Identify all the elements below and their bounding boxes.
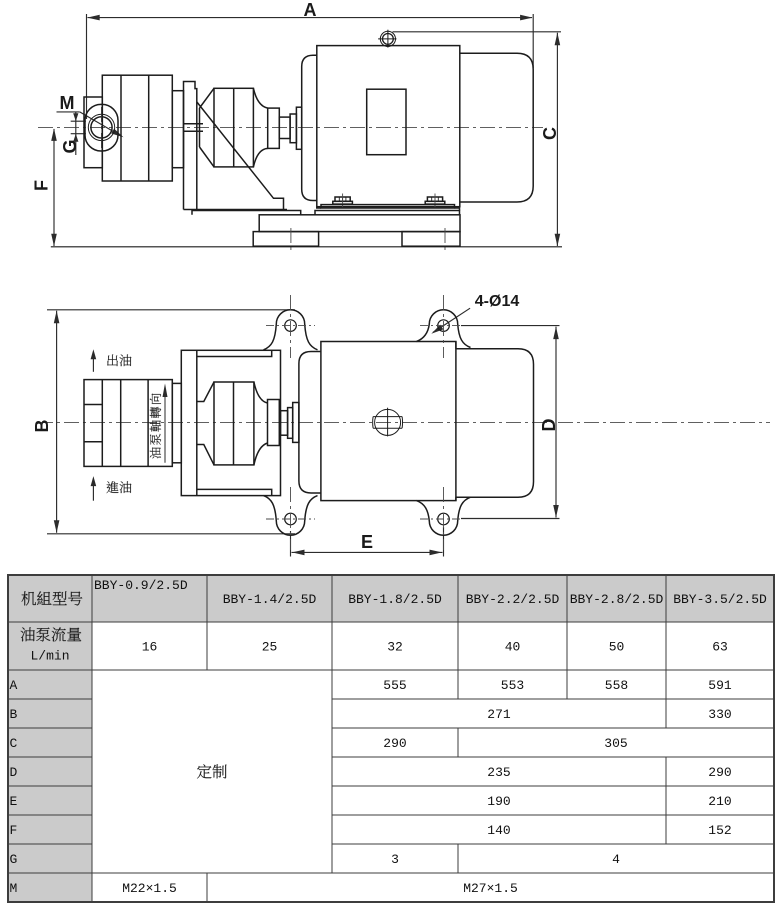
- svg-text:555: 555: [383, 678, 406, 693]
- svg-text:L/min: L/min: [30, 649, 69, 664]
- svg-text:235: 235: [487, 765, 510, 780]
- svg-text:M27×1.5: M27×1.5: [463, 881, 518, 896]
- svg-text:190: 190: [487, 794, 510, 809]
- svg-text:D: D: [539, 419, 559, 432]
- svg-text:3: 3: [391, 852, 399, 867]
- svg-text:C: C: [540, 127, 560, 140]
- svg-text:290: 290: [708, 765, 731, 780]
- svg-text:B: B: [32, 420, 52, 433]
- svg-text:C: C: [10, 736, 18, 751]
- svg-text:A: A: [10, 678, 18, 693]
- svg-text:4-Ø14: 4-Ø14: [475, 293, 520, 310]
- svg-text:E: E: [10, 794, 18, 809]
- svg-text:G: G: [10, 852, 18, 867]
- svg-text:152: 152: [708, 823, 731, 838]
- svg-text:40: 40: [505, 640, 521, 655]
- svg-text:330: 330: [708, 707, 731, 722]
- svg-text:E: E: [361, 532, 373, 552]
- svg-text:32: 32: [387, 640, 403, 655]
- svg-text:BBY-0.9/2.5D: BBY-0.9/2.5D: [94, 578, 188, 593]
- svg-text:553: 553: [501, 678, 524, 693]
- svg-text:M: M: [10, 881, 18, 896]
- svg-text:210: 210: [708, 794, 731, 809]
- svg-text:140: 140: [487, 823, 510, 838]
- svg-text:16: 16: [142, 640, 158, 655]
- svg-text:BBY-3.5/2.5D: BBY-3.5/2.5D: [673, 592, 767, 607]
- svg-text:G: G: [60, 139, 80, 153]
- svg-text:50: 50: [609, 640, 625, 655]
- svg-text:BBY-2.8/2.5D: BBY-2.8/2.5D: [570, 592, 664, 607]
- svg-text:25: 25: [262, 640, 278, 655]
- svg-text:63: 63: [712, 640, 728, 655]
- svg-text:M: M: [60, 93, 75, 113]
- svg-text:A: A: [304, 0, 317, 20]
- svg-text:BBY-1.4/2.5D: BBY-1.4/2.5D: [223, 592, 317, 607]
- svg-text:F: F: [32, 180, 52, 191]
- svg-text:BBY-2.2/2.5D: BBY-2.2/2.5D: [466, 592, 560, 607]
- svg-text:B: B: [10, 707, 18, 722]
- svg-text:M22×1.5: M22×1.5: [122, 881, 177, 896]
- svg-text:558: 558: [605, 678, 628, 693]
- svg-text:BBY-1.8/2.5D: BBY-1.8/2.5D: [348, 592, 442, 607]
- svg-text:4: 4: [612, 852, 620, 867]
- svg-text:271: 271: [487, 707, 511, 722]
- svg-text:591: 591: [708, 678, 732, 693]
- svg-text:D: D: [10, 765, 18, 780]
- svg-text:290: 290: [383, 736, 406, 751]
- svg-text:305: 305: [604, 736, 627, 751]
- svg-text:F: F: [10, 823, 18, 838]
